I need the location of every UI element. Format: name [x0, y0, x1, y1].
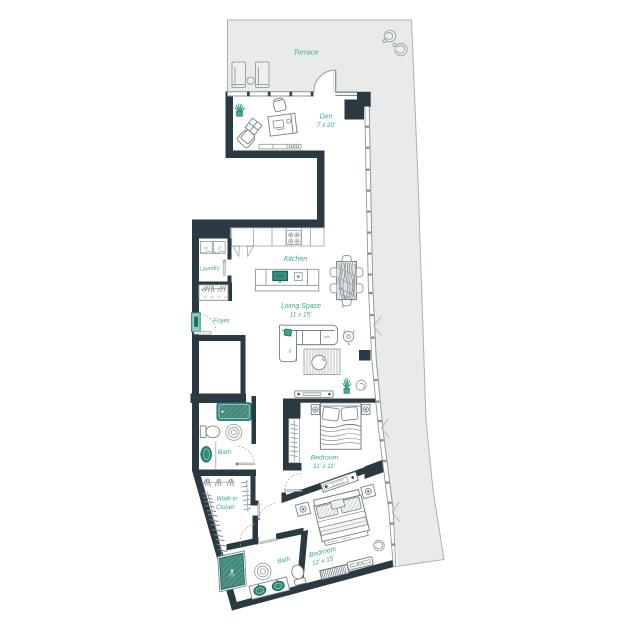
svg-text:Laundry: Laundry [199, 265, 221, 272]
svg-text:Living Space: Living Space [281, 303, 321, 310]
svg-text:Bath: Bath [218, 449, 232, 456]
svg-text:Closet: Closet [216, 504, 234, 511]
svg-text:11' x 11': 11' x 11' [313, 463, 336, 470]
svg-text:d: d [218, 246, 221, 252]
svg-text:Foyer: Foyer [213, 318, 231, 325]
svg-text:7 x 20': 7 x 20' [317, 122, 336, 129]
svg-text:w: w [204, 246, 208, 252]
svg-text:Kitchen: Kitchen [284, 256, 307, 263]
svg-text:Walk-in: Walk-in [216, 496, 238, 503]
svg-text:Den: Den [320, 114, 333, 121]
svg-text:11 x 15': 11 x 15' [290, 312, 312, 319]
svg-text:Terrace: Terrace [293, 48, 318, 57]
svg-text:Bedroom: Bedroom [311, 455, 339, 462]
